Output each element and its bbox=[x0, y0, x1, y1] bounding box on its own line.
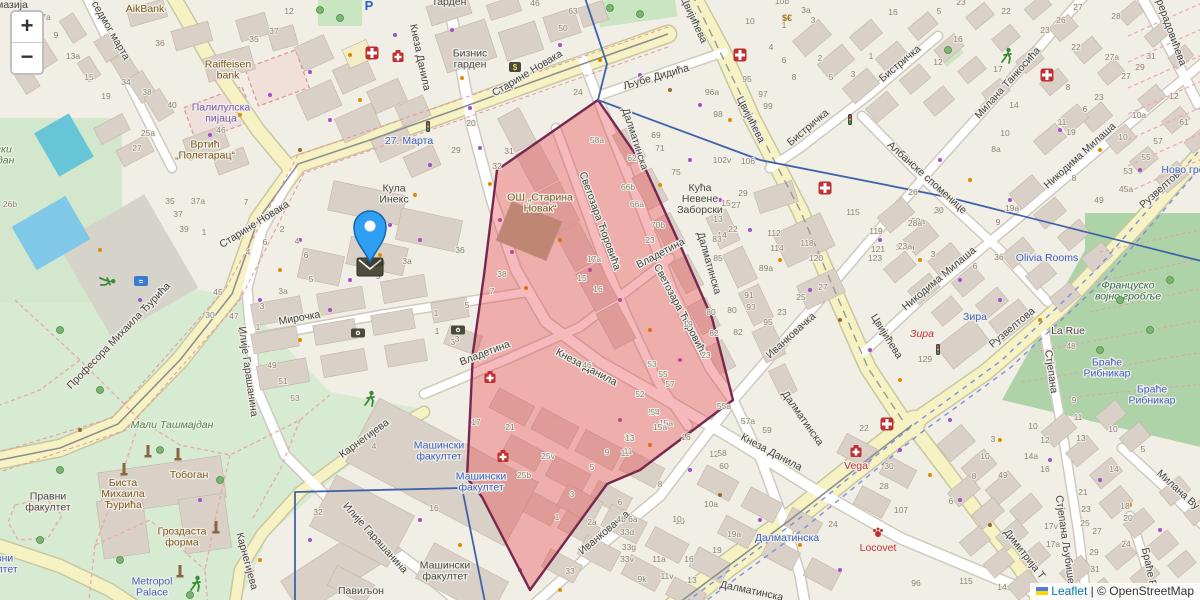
poi-label: КулаИнекс bbox=[379, 183, 408, 206]
hospital-icon bbox=[1041, 69, 1054, 82]
house-number: 45 bbox=[213, 287, 223, 297]
house-number: 20 bbox=[1123, 513, 1133, 523]
poi-dot bbox=[748, 228, 752, 232]
zoom-out-button[interactable]: − bbox=[12, 43, 42, 73]
zoom-control: + − bbox=[10, 10, 44, 75]
house-number: 17 bbox=[471, 417, 481, 427]
house-number: 15 bbox=[577, 273, 587, 283]
house-number: 33 bbox=[565, 566, 575, 576]
poi-dot bbox=[758, 518, 762, 522]
poi-label: Vega bbox=[844, 460, 868, 472]
parking-icon: P bbox=[365, 0, 374, 13]
house-number: 8 bbox=[1072, 173, 1077, 183]
house-number: 11 bbox=[624, 446, 633, 456]
house-number: 10 bbox=[1118, 132, 1128, 142]
house-number: 3 bbox=[811, 15, 816, 25]
poi-dot bbox=[1138, 168, 1142, 172]
tree-icon bbox=[157, 447, 164, 454]
house-number: 57a bbox=[741, 416, 755, 426]
poi-dot bbox=[898, 378, 902, 382]
house-number: 23 bbox=[1081, 504, 1091, 514]
poi-dot bbox=[988, 523, 992, 527]
house-number: 3 bbox=[260, 301, 265, 311]
poi-label: Бизнисгарден bbox=[453, 48, 487, 71]
house-number: 59 bbox=[762, 425, 772, 435]
poi-dot bbox=[268, 93, 272, 97]
house-number: 28 bbox=[879, 481, 889, 491]
house-number: 55 bbox=[658, 369, 668, 379]
house-number: 15 bbox=[84, 72, 94, 82]
poi-label: Правнифакултет bbox=[25, 491, 71, 514]
house-number: 28 bbox=[1111, 11, 1121, 21]
tree-icon bbox=[217, 477, 224, 484]
house-number: 27a bbox=[1105, 52, 1119, 62]
house-number: 3 bbox=[570, 489, 575, 499]
house-number: 89a bbox=[759, 263, 773, 273]
poi-dot bbox=[238, 113, 242, 117]
house-number: 37a bbox=[191, 196, 205, 206]
poi-dot bbox=[393, 33, 397, 37]
house-number: 16 bbox=[1040, 464, 1050, 474]
zoom-in-button[interactable]: + bbox=[12, 12, 42, 43]
marker-shadow bbox=[365, 259, 385, 267]
house-number: 38 bbox=[142, 87, 152, 97]
house-number: 2a bbox=[587, 517, 597, 527]
house-number: 53 bbox=[647, 359, 657, 369]
house-number: 22 bbox=[859, 423, 869, 433]
house-number: 19 bbox=[683, 319, 693, 329]
house-number: 123 bbox=[868, 253, 882, 263]
house-number: 19 bbox=[1066, 127, 1076, 137]
house-number: 7 bbox=[490, 286, 495, 296]
house-number: 106 bbox=[741, 156, 755, 166]
house-number: 31 bbox=[1090, 564, 1100, 574]
house-number: 49 bbox=[998, 470, 1008, 480]
house-number: 16 bbox=[888, 7, 898, 17]
house-number: 2 bbox=[818, 53, 823, 63]
house-number: 39 bbox=[179, 224, 189, 234]
house-number: 36 bbox=[994, 252, 1004, 262]
house-number: 12 bbox=[284, 6, 294, 16]
house-number: 27 bbox=[132, 143, 142, 153]
tree-icon bbox=[57, 467, 64, 474]
poi-dot bbox=[388, 223, 392, 227]
poi-dot bbox=[378, 253, 382, 257]
house-number: 18 bbox=[1120, 501, 1130, 511]
poi-dot bbox=[468, 106, 472, 110]
house-number: 115 bbox=[846, 207, 860, 217]
house-number: 1 bbox=[435, 326, 440, 336]
house-number: 51 bbox=[278, 376, 288, 386]
swim-sign-icon: ≈ bbox=[134, 276, 148, 286]
traffic-light-icon bbox=[848, 114, 852, 125]
poi-dot bbox=[413, 193, 417, 197]
house-number: 27 bbox=[731, 200, 741, 210]
leaflet-link[interactable]: Leaflet bbox=[1051, 584, 1087, 598]
poi-label: Францусковојно гробље bbox=[1095, 280, 1161, 303]
tree-icon bbox=[1117, 297, 1124, 304]
house-number: 25v bbox=[541, 451, 555, 461]
house-number: 47 bbox=[229, 311, 239, 321]
house-number: 8 bbox=[972, 471, 977, 481]
poi-dot bbox=[948, 418, 952, 422]
poi-dot bbox=[418, 238, 422, 242]
house-number: 6 bbox=[949, 496, 954, 506]
svg-text:P: P bbox=[365, 0, 374, 13]
house-number: 1 bbox=[256, 322, 261, 332]
svg-text:≈: ≈ bbox=[139, 277, 144, 286]
house-number: 8 bbox=[1066, 82, 1071, 92]
house-number: 26 bbox=[1056, 15, 1066, 25]
poi-label: Машинскифакултет bbox=[420, 560, 471, 583]
house-number: 70b bbox=[651, 220, 665, 230]
openstreetmap-link[interactable]: © OpenStreetMap bbox=[1097, 584, 1194, 598]
house-number: 45a bbox=[1119, 184, 1133, 194]
map-canvas[interactable]: седмог мартаСтарине НовакаСтарине Новака… bbox=[0, 0, 1200, 600]
house-number: 23a bbox=[898, 241, 912, 251]
tree-icon bbox=[607, 5, 614, 12]
house-number: 71 bbox=[655, 143, 665, 153]
tree-icon bbox=[117, 557, 124, 564]
house-number: 30 bbox=[884, 461, 894, 471]
house-number: 9k bbox=[638, 574, 648, 584]
house-number: 1 bbox=[202, 227, 207, 237]
poi-dot bbox=[938, 158, 942, 162]
house-number: 15a bbox=[653, 422, 667, 432]
house-number: 61 bbox=[1179, 117, 1189, 127]
poi-label: Locovet bbox=[860, 542, 897, 554]
house-number: 32 bbox=[492, 161, 502, 171]
house-number: 10a bbox=[1132, 110, 1146, 120]
house-number: 16 bbox=[429, 503, 439, 513]
map-svg: седмог мартаСтарине НовакаСтарине Новака… bbox=[0, 0, 1200, 600]
house-number: 29 bbox=[1089, 547, 1099, 557]
house-number: 129 bbox=[918, 354, 932, 364]
poi-dot bbox=[298, 338, 302, 342]
poi-dot bbox=[918, 258, 922, 262]
house-number: 10 bbox=[745, 16, 755, 26]
poi-dot bbox=[998, 298, 1002, 302]
house-number: 1 bbox=[434, 308, 439, 318]
house-number: 114 bbox=[770, 243, 784, 253]
house-number: 93 bbox=[746, 302, 756, 312]
house-number: 38 bbox=[497, 269, 507, 279]
hospital-icon bbox=[366, 47, 379, 60]
house-number: 82 bbox=[709, 328, 719, 338]
poi-dot bbox=[258, 558, 262, 562]
house-number: 75 bbox=[671, 167, 681, 177]
house-number: 25 bbox=[1080, 518, 1090, 528]
tree-icon bbox=[1167, 277, 1174, 284]
house-number: 22 bbox=[1071, 42, 1081, 52]
poi-label: Ново гро bbox=[1161, 164, 1200, 176]
house-number: 99 bbox=[763, 101, 773, 111]
poi-dot bbox=[278, 268, 282, 272]
house-number: 9 bbox=[605, 447, 610, 457]
poi-dot bbox=[308, 70, 312, 74]
house-number: 1 bbox=[869, 51, 874, 61]
tree-icon bbox=[945, 47, 952, 54]
poi-dot bbox=[328, 118, 332, 122]
house-number: 14a bbox=[1024, 451, 1038, 461]
eye-icon bbox=[351, 329, 365, 338]
house-number: 5 bbox=[937, 6, 942, 16]
house-number: 6 bbox=[304, 250, 309, 260]
tree-icon bbox=[1097, 347, 1104, 354]
house-number: 112 bbox=[767, 228, 781, 238]
house-number: 17a bbox=[587, 254, 601, 264]
house-number: 26 bbox=[908, 187, 918, 197]
house-number: 12 bbox=[1040, 435, 1050, 445]
poi-dot bbox=[838, 568, 842, 572]
poi-label: MetropolPalace bbox=[132, 576, 173, 599]
house-number: 30 bbox=[205, 310, 215, 320]
house-number: 25 bbox=[796, 292, 806, 302]
house-number: 83 bbox=[712, 234, 722, 244]
house-number: 66b bbox=[621, 182, 635, 192]
house-number: 29 bbox=[451, 145, 461, 155]
house-number: 119 bbox=[869, 226, 883, 236]
house-number: 11a bbox=[652, 554, 666, 564]
house-number: 3a bbox=[402, 256, 412, 266]
house-number: 4 bbox=[769, 42, 774, 52]
eye-icon bbox=[451, 326, 465, 335]
poi-dot bbox=[1098, 148, 1102, 152]
poi-dot bbox=[458, 543, 462, 547]
house-number: 48 bbox=[1066, 341, 1076, 351]
poi-label: Зира bbox=[963, 311, 987, 323]
house-number: 58a bbox=[590, 135, 604, 145]
house-number: 55 bbox=[1141, 152, 1151, 162]
house-number: 3 bbox=[455, 334, 460, 344]
house-number: 26b bbox=[3, 199, 17, 209]
poi-dot bbox=[958, 278, 962, 282]
poi-dot bbox=[478, 146, 482, 150]
house-number: 5 bbox=[590, 462, 595, 472]
poi-dot bbox=[460, 76, 464, 80]
house-number: 7 bbox=[244, 197, 249, 207]
house-number: 25a bbox=[141, 128, 155, 138]
house-number: 27 bbox=[1121, 71, 1131, 81]
traffic-light-icon bbox=[426, 121, 430, 132]
house-number: 8a bbox=[991, 144, 1001, 154]
house-number: 60 bbox=[719, 461, 729, 471]
house-number: 3 bbox=[931, 249, 936, 259]
poi-dot bbox=[1038, 318, 1042, 322]
poi-dot bbox=[428, 163, 432, 167]
poi-label: AikBank bbox=[126, 3, 165, 15]
house-number: 22 bbox=[728, 224, 738, 234]
house-number: 10 bbox=[980, 451, 990, 461]
house-number: 22 bbox=[1001, 6, 1011, 16]
house-number: 20 bbox=[466, 118, 476, 128]
house-number: 14 bbox=[1009, 100, 1019, 110]
poi-dot bbox=[198, 498, 202, 502]
poi-dot bbox=[1008, 198, 1012, 202]
poi-dot bbox=[778, 258, 782, 262]
house-number: 33g bbox=[622, 542, 636, 552]
poi-dot bbox=[78, 428, 82, 432]
poi-dot bbox=[208, 133, 212, 137]
house-number: 16 bbox=[684, 554, 694, 564]
house-number: 11 bbox=[1074, 412, 1083, 422]
house-number: 23 bbox=[1040, 25, 1050, 35]
poi-label: Зира bbox=[910, 328, 934, 340]
house-number: 53 bbox=[1123, 166, 1133, 176]
house-number: 4b 6a bbox=[616, 514, 638, 524]
house-number: 8 bbox=[792, 72, 797, 82]
house-number: 115 bbox=[959, 576, 973, 586]
house-number: 46 bbox=[216, 125, 226, 135]
house-number: 17v bbox=[1044, 521, 1058, 531]
poi-dot bbox=[138, 298, 142, 302]
house-number: 10 bbox=[1028, 421, 1038, 431]
poi-dot bbox=[348, 53, 352, 57]
tree-icon bbox=[187, 592, 194, 599]
poi-dot bbox=[1048, 458, 1052, 462]
poi-label: Мали Ташмајдан bbox=[131, 419, 214, 431]
house-number: 13 bbox=[687, 575, 697, 585]
house-number: 23 bbox=[956, 0, 966, 7]
poi-dot bbox=[450, 28, 454, 32]
house-number: 97 bbox=[758, 89, 768, 99]
house-number: 62 bbox=[627, 153, 637, 163]
house-number: 95 bbox=[742, 74, 752, 84]
poi-dot bbox=[998, 438, 1002, 442]
poi-dot bbox=[658, 183, 662, 187]
house-number: 17 bbox=[993, 64, 1003, 74]
house-number: 46 bbox=[582, 360, 592, 370]
house-number: 3 bbox=[991, 434, 996, 444]
house-number: 17a bbox=[1046, 539, 1060, 549]
poi-dot bbox=[718, 493, 722, 497]
poi-dot bbox=[928, 473, 932, 477]
house-number: 49 bbox=[1094, 195, 1104, 205]
house-number: 36 bbox=[155, 38, 165, 48]
poi-label: 27. Марта bbox=[385, 135, 434, 147]
tree-icon bbox=[57, 327, 64, 334]
house-number: 19a bbox=[727, 529, 741, 539]
tree-icon bbox=[337, 15, 344, 22]
house-number: 5 bbox=[465, 300, 470, 310]
tree-icon bbox=[37, 537, 44, 544]
house-number: 6 bbox=[618, 497, 623, 507]
house-number: 9 bbox=[996, 217, 1001, 227]
poi-label: гарден bbox=[434, 0, 467, 8]
house-number: 5 bbox=[309, 274, 314, 284]
poi-dot bbox=[898, 448, 902, 452]
house-number: 29 bbox=[1135, 62, 1145, 72]
house-number: 102v bbox=[713, 155, 732, 165]
poi-label: Машинскифакултет bbox=[414, 440, 465, 463]
house-number: 12 bbox=[1169, 91, 1179, 101]
house-number: 3a bbox=[801, 5, 811, 15]
poi-dot bbox=[868, 348, 872, 352]
house-number: 16 bbox=[953, 34, 963, 44]
house-number: 82 bbox=[733, 327, 743, 337]
poi-dot bbox=[1098, 478, 1102, 482]
map-area bbox=[318, 0, 362, 26]
house-number: 80 bbox=[727, 305, 737, 315]
house-number: 24 bbox=[828, 519, 838, 529]
house-number: 46 bbox=[530, 0, 540, 8]
house-number: 66a bbox=[630, 199, 644, 209]
poi-label: Машинскифакултет bbox=[456, 471, 507, 494]
house-number: 53 bbox=[290, 393, 300, 403]
house-number: 21 bbox=[1078, 487, 1088, 497]
house-number: 34 bbox=[121, 77, 131, 87]
poi-dot bbox=[688, 158, 692, 162]
poi-dot bbox=[688, 468, 692, 472]
house-number: 37 bbox=[173, 209, 183, 219]
poi-dot bbox=[358, 98, 362, 102]
house-number: 31 bbox=[1146, 51, 1156, 61]
house-number: 10 bbox=[1000, 128, 1010, 138]
poi-dot bbox=[348, 278, 352, 282]
house-number: 23 bbox=[701, 350, 711, 360]
house-number: 3 bbox=[851, 69, 856, 79]
poi-dot bbox=[838, 318, 842, 322]
house-number: 15 bbox=[721, 198, 731, 208]
house-number: 80 bbox=[706, 307, 716, 317]
house-number: 63 bbox=[568, 6, 578, 16]
house-number: 4 bbox=[372, 441, 377, 451]
house-number: 16 bbox=[681, 432, 691, 442]
house-number: 5 bbox=[1141, 444, 1146, 454]
poi-dot bbox=[558, 43, 562, 47]
marker-pin-dot bbox=[365, 221, 376, 232]
poi-label: La Rue bbox=[1051, 325, 1085, 337]
poi-dot bbox=[418, 518, 422, 522]
house-number: 35 bbox=[165, 196, 175, 206]
poi-dot bbox=[878, 238, 882, 242]
house-number: 107 bbox=[894, 505, 908, 515]
house-number: 27 bbox=[1073, 2, 1083, 12]
house-number: 33d bbox=[620, 527, 634, 537]
house-number: 23 bbox=[1094, 92, 1104, 102]
house-number: 10b bbox=[775, 0, 789, 6]
tree-icon bbox=[317, 7, 324, 14]
house-number: 23 bbox=[777, 307, 787, 317]
house-number: 28a bbox=[908, 218, 922, 228]
ukraine-flag-icon bbox=[1036, 587, 1048, 595]
tree-icon bbox=[97, 387, 104, 394]
poi-dot bbox=[728, 118, 732, 122]
house-number: 6 bbox=[973, 261, 978, 271]
money-icon: $€ bbox=[782, 13, 792, 23]
poi-label: Olivia Rooms bbox=[1016, 252, 1078, 264]
house-number: 50 bbox=[558, 23, 568, 33]
house-number: 6 bbox=[263, 237, 268, 247]
house-number: 19 bbox=[712, 545, 722, 555]
house-number: 24 bbox=[573, 87, 583, 97]
house-number: 1 bbox=[555, 512, 560, 522]
house-number: 37 bbox=[269, 26, 279, 36]
house-number: 96 bbox=[911, 578, 921, 588]
house-number: 57 bbox=[665, 379, 675, 389]
house-number: 12 bbox=[933, 57, 943, 67]
house-number: 14 bbox=[1109, 464, 1119, 474]
house-number: 29 bbox=[738, 188, 748, 198]
poi-dot bbox=[958, 498, 962, 502]
house-number: 2 bbox=[280, 224, 285, 234]
house-number: 4 bbox=[295, 236, 300, 246]
house-number: 10 bbox=[1108, 424, 1118, 434]
house-number: 118 bbox=[800, 238, 814, 248]
house-number: 3a bbox=[278, 286, 288, 296]
traffic-light-icon bbox=[936, 344, 940, 355]
house-number: 16 bbox=[593, 284, 603, 294]
